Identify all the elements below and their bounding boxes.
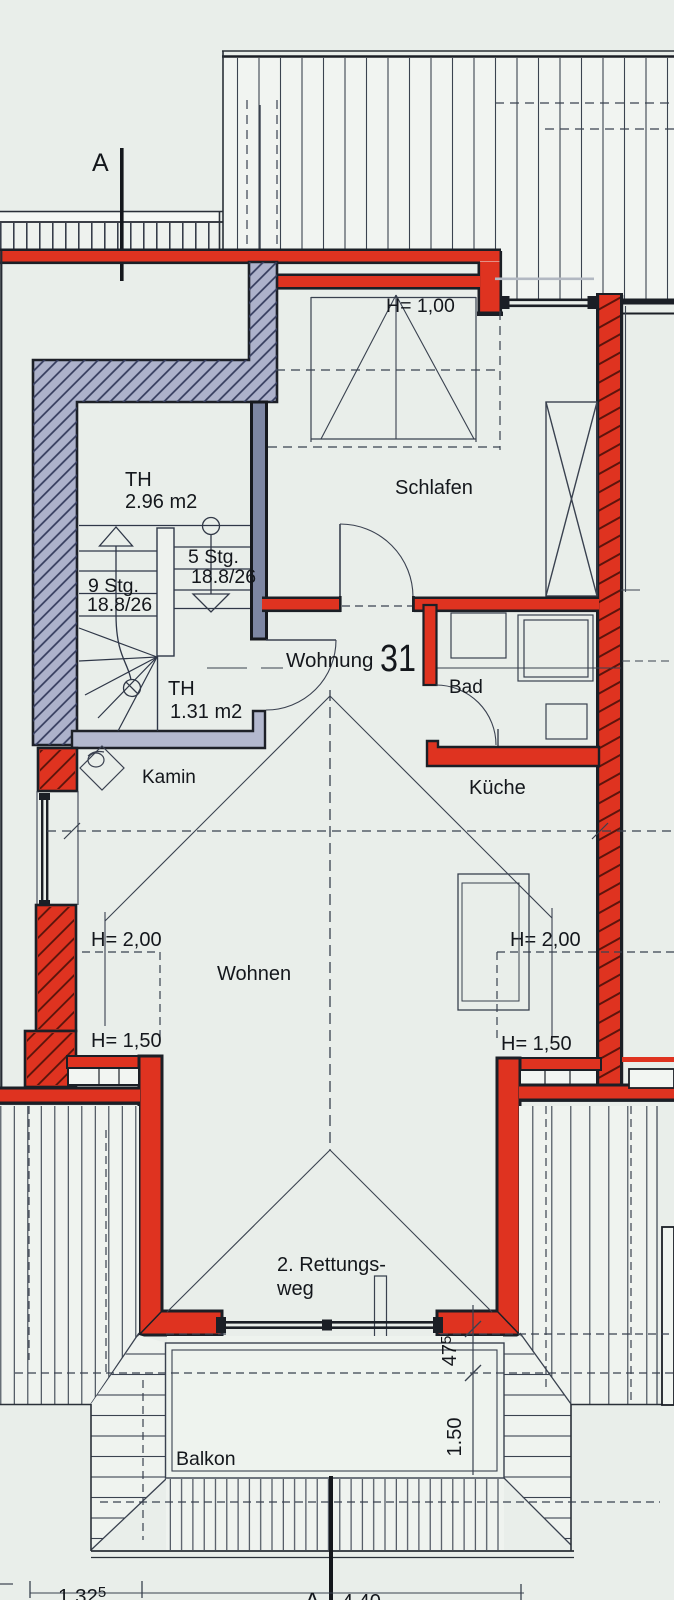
- svg-text:1.50: 1.50: [444, 1418, 466, 1457]
- svg-text:A: A: [92, 149, 109, 177]
- svg-text:H= 2,00: H= 2,00: [91, 929, 162, 951]
- svg-text:Küche: Küche: [469, 777, 526, 799]
- svg-text:18.8/26: 18.8/26: [87, 594, 152, 616]
- svg-text:4.40: 4.40: [342, 1591, 381, 1600]
- svg-text:Kamin: Kamin: [142, 767, 196, 788]
- svg-text:31: 31: [380, 638, 416, 680]
- svg-text:5 Stg.: 5 Stg.: [188, 546, 239, 568]
- svg-text:H= 1,50: H= 1,50: [91, 1030, 162, 1052]
- svg-text:2. Rettungs-: 2. Rettungs-: [277, 1254, 386, 1276]
- svg-text:H= 2,00: H= 2,00: [510, 929, 581, 951]
- svg-text:Balkon: Balkon: [176, 1448, 236, 1470]
- svg-text:H= 1,00: H= 1,00: [386, 295, 455, 317]
- svg-text:Bad: Bad: [449, 677, 483, 698]
- svg-text:TH: TH: [125, 469, 152, 491]
- svg-text:weg: weg: [276, 1278, 314, 1300]
- svg-text:A: A: [305, 1588, 320, 1600]
- svg-text:Wohnung: Wohnung: [286, 649, 373, 672]
- svg-text:H= 1,50: H= 1,50: [501, 1033, 572, 1055]
- svg-text:Wohnen: Wohnen: [217, 963, 291, 985]
- svg-text:1.31 m2: 1.31 m2: [170, 701, 242, 723]
- svg-text:1.325: 1.325: [58, 1584, 106, 1600]
- svg-text:Schlafen: Schlafen: [395, 477, 473, 499]
- svg-text:TH: TH: [168, 678, 195, 700]
- svg-text:2.96 m2: 2.96 m2: [125, 491, 197, 513]
- svg-text:18.8/26: 18.8/26: [191, 566, 256, 588]
